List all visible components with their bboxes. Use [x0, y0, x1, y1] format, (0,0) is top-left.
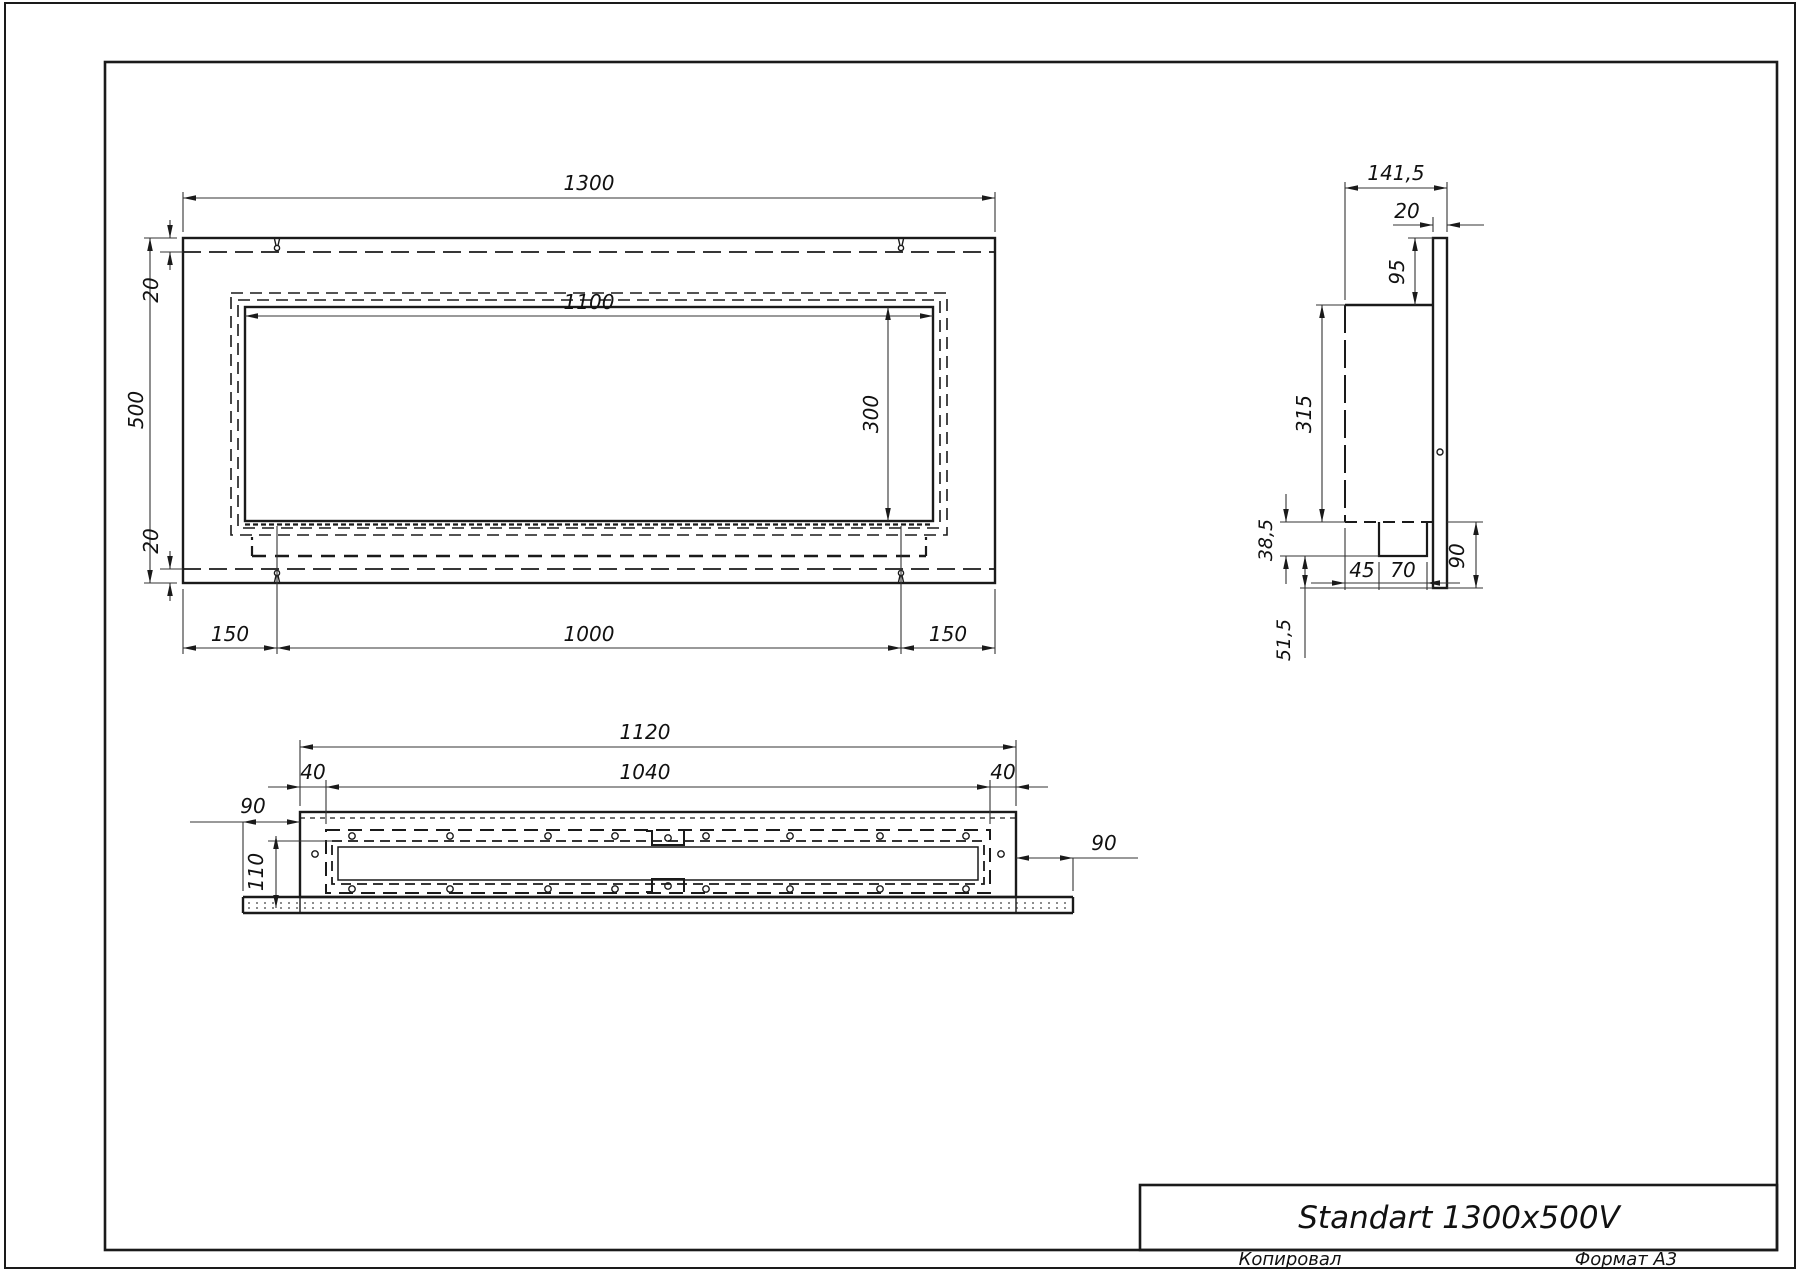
front-view-opening: [231, 293, 947, 535]
drawing-title: Standart 1300x500V: [1298, 1200, 1622, 1236]
side-view: 141,5 20 95 315 38,5 45 70 90 51,5: [1255, 161, 1484, 661]
plan-view-hidden-frame: [326, 830, 990, 893]
dim-front-opening-height: 300: [859, 395, 883, 433]
dim-side-body-height: 315: [1292, 395, 1316, 433]
plan-view: 1120 1040 40 40 90 110 90: [190, 720, 1138, 913]
dim-side-tray-height: 38,5: [1255, 519, 1277, 561]
dim-front-left-offset: 150: [211, 622, 249, 646]
dim-side-overall-depth: 141,5: [1367, 161, 1424, 185]
side-view-arrowheads: [1283, 185, 1479, 588]
dim-plan-right-overhang: 90: [1091, 831, 1116, 855]
dim-plan-inner-width: 1040: [620, 760, 671, 784]
drawing-page: 1300 500 20 20 1100 300 150 1000 150: [0, 0, 1800, 1273]
dim-front-right-offset: 150: [929, 622, 967, 646]
dim-plan-right-inset: 40: [990, 760, 1015, 784]
dim-front-bottom-inset: 20: [139, 528, 163, 553]
dim-plan-depth: 110: [244, 853, 268, 891]
plan-view-outline: [243, 812, 1073, 913]
dim-side-tray-offset: 45: [1349, 558, 1374, 582]
dim-side-bottom-extension: 90: [1445, 543, 1469, 568]
copied-by-label: Копировал: [1239, 1249, 1342, 1270]
front-view-hidden-tray: [252, 537, 926, 556]
dim-front-slot-spacing: 1000: [564, 622, 615, 646]
sheet-border: [5, 3, 1795, 1268]
format-label: Формат А3: [1575, 1249, 1678, 1270]
dim-front-overall-width: 1300: [564, 171, 615, 195]
dim-side-top-extension: 95: [1385, 259, 1409, 284]
title-block: Standart 1300x500V Копировал Формат А3: [1140, 1185, 1777, 1270]
front-view: 1300 500 20 20 1100 300 150 1000 150: [124, 171, 995, 654]
dim-side-bottom-offset: 51,5: [1273, 619, 1295, 661]
dim-front-top-inset: 20: [139, 277, 163, 302]
dim-front-overall-height: 500: [124, 391, 148, 429]
side-view-outline: [1345, 238, 1447, 588]
drawing-canvas: 1300 500 20 20 1100 300 150 1000 150: [0, 0, 1800, 1273]
dim-front-opening-width: 1100: [564, 290, 615, 314]
dim-plan-left-inset: 40: [300, 760, 325, 784]
dim-plan-left-overhang: 90: [240, 794, 265, 818]
dim-side-tray-width: 70: [1390, 558, 1415, 582]
dim-plan-box-width: 1120: [620, 720, 671, 744]
dim-side-flange-thickness: 20: [1394, 199, 1419, 223]
